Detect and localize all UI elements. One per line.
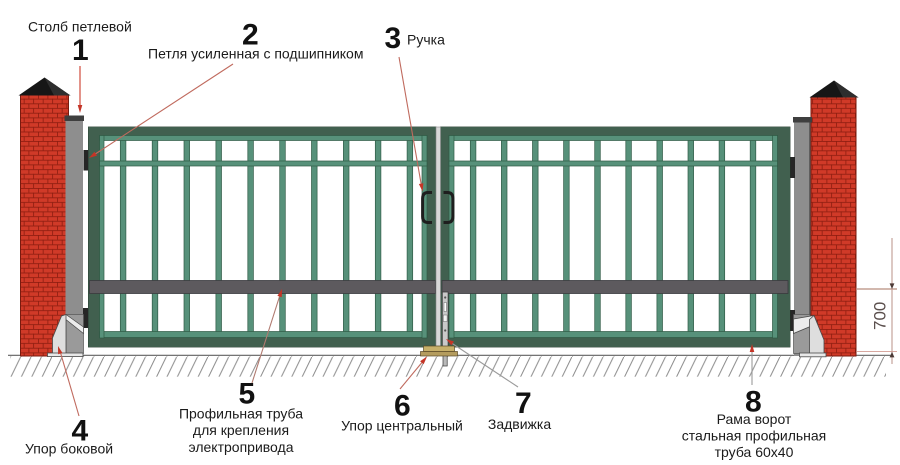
svg-text:электропривода: электропривода [189,439,294,455]
svg-text:Столб петлевой: Столб петлевой [28,19,132,35]
svg-text:Профильная труба: Профильная труба [179,406,303,422]
svg-text:Задвижка: Задвижка [488,416,551,432]
svg-text:Ручка: Ручка [407,32,445,48]
svg-text:Упор центральный: Упор центральный [341,418,463,434]
svg-text:Упор боковой: Упор боковой [25,441,113,457]
svg-text:труба 60х40: труба 60х40 [715,444,794,460]
svg-text:1: 1 [72,34,89,67]
svg-text:Петля усиленная с подшипником: Петля усиленная с подшипником [148,46,363,62]
svg-text:Рама ворот: Рама ворот [717,411,792,427]
svg-text:для крепления: для крепления [193,422,289,438]
svg-text:стальная профильная: стальная профильная [682,428,827,444]
svg-text:3: 3 [385,22,402,55]
svg-text:700: 700 [871,302,890,330]
